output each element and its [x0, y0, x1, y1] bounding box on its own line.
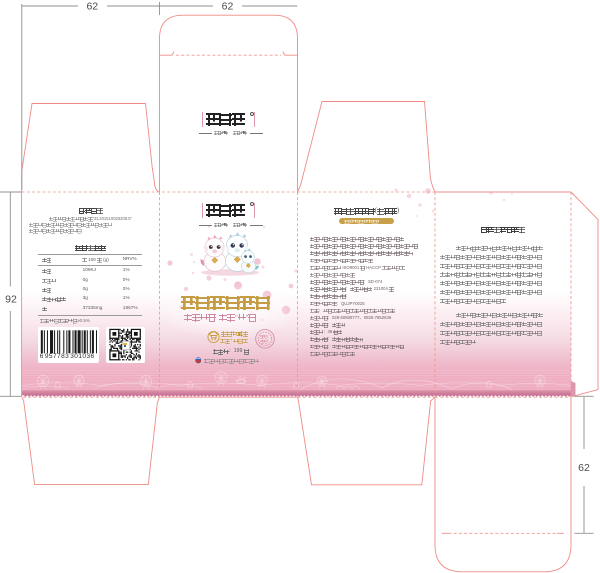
svg-text:62: 62: [578, 462, 590, 474]
svg-text:62: 62: [222, 1, 234, 13]
svg-text:62: 62: [86, 1, 98, 13]
svg-text:92: 92: [5, 294, 17, 306]
